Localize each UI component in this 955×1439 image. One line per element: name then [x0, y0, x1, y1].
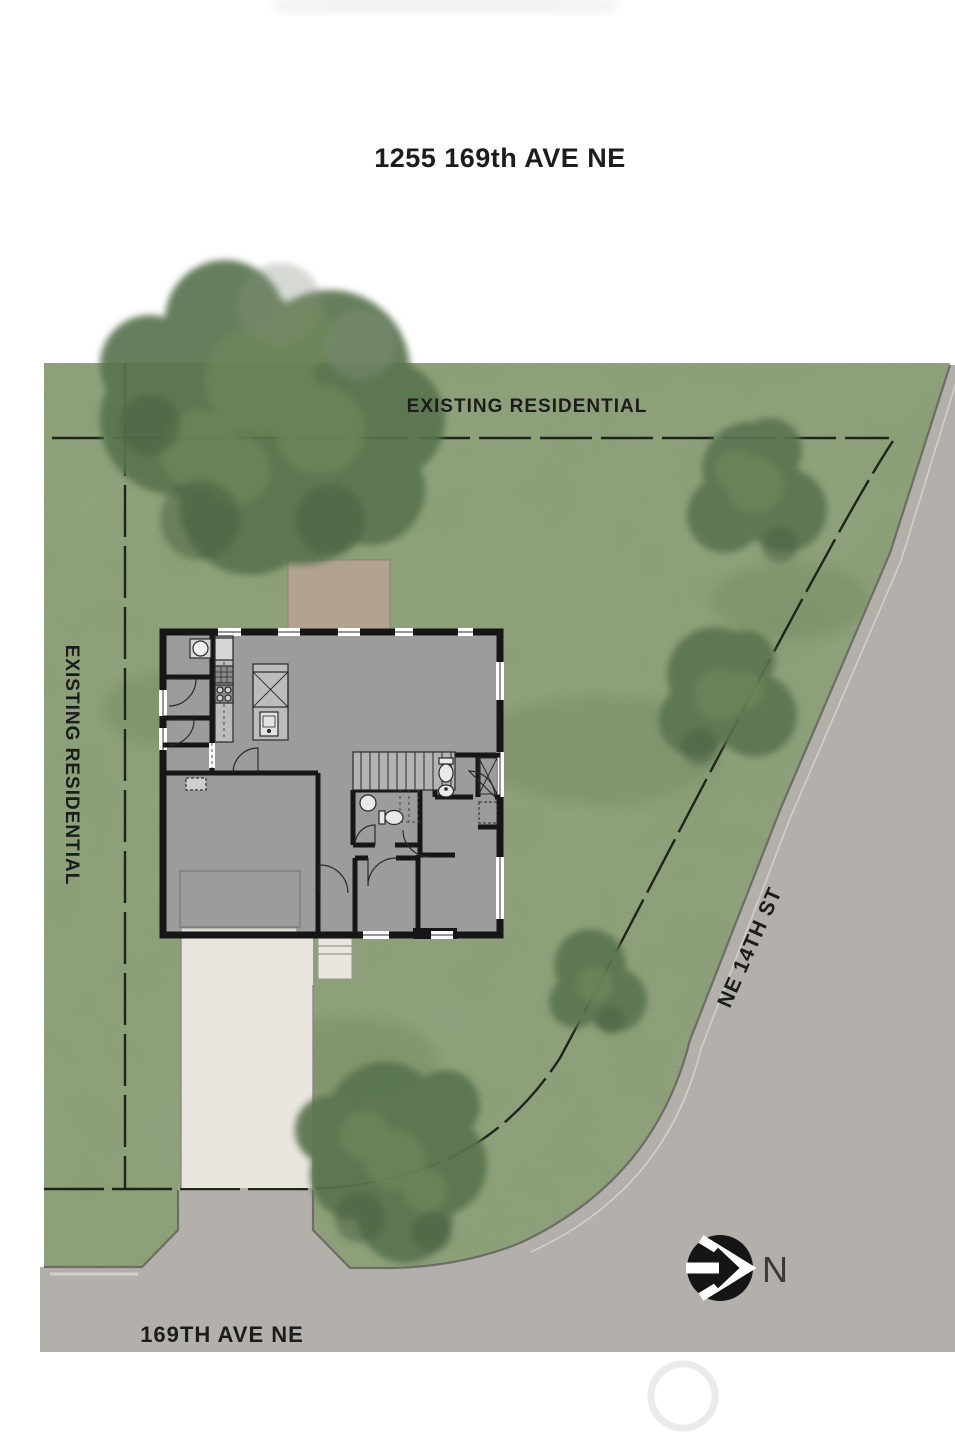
- utility-sink: [190, 639, 211, 658]
- range-stove: [215, 666, 233, 703]
- site-plan-drawing: 1255 169th AVE NE EXISTING RESIDENTIAL E…: [0, 0, 955, 1439]
- watermark-circle: [651, 1364, 715, 1428]
- house-floor-plan: [159, 628, 504, 939]
- bathroom: [439, 758, 454, 797]
- refrigerator: [215, 638, 233, 660]
- patio-pad: [288, 560, 390, 634]
- powder-sink: [360, 795, 376, 811]
- site-plan-page: 1255 169th AVE NE EXISTING RESIDENTIAL E…: [0, 0, 955, 1439]
- top-scan-smudge: [275, 0, 615, 11]
- bath-toilet: [439, 764, 453, 782]
- label-existing-residential-north: EXISTING RESIDENTIAL: [407, 396, 648, 417]
- page-title: 1255 169th AVE NE: [374, 143, 626, 173]
- label-existing-residential-west: EXISTING RESIDENTIAL: [61, 645, 82, 886]
- powder-toilet: [385, 811, 403, 825]
- kitchen-island: [253, 664, 288, 740]
- north-letter: N: [762, 1249, 789, 1290]
- label-169th-ave-ne: 169TH AVE NE: [140, 1322, 304, 1347]
- driveway: [181, 930, 313, 1188]
- bath-sink: [439, 785, 454, 797]
